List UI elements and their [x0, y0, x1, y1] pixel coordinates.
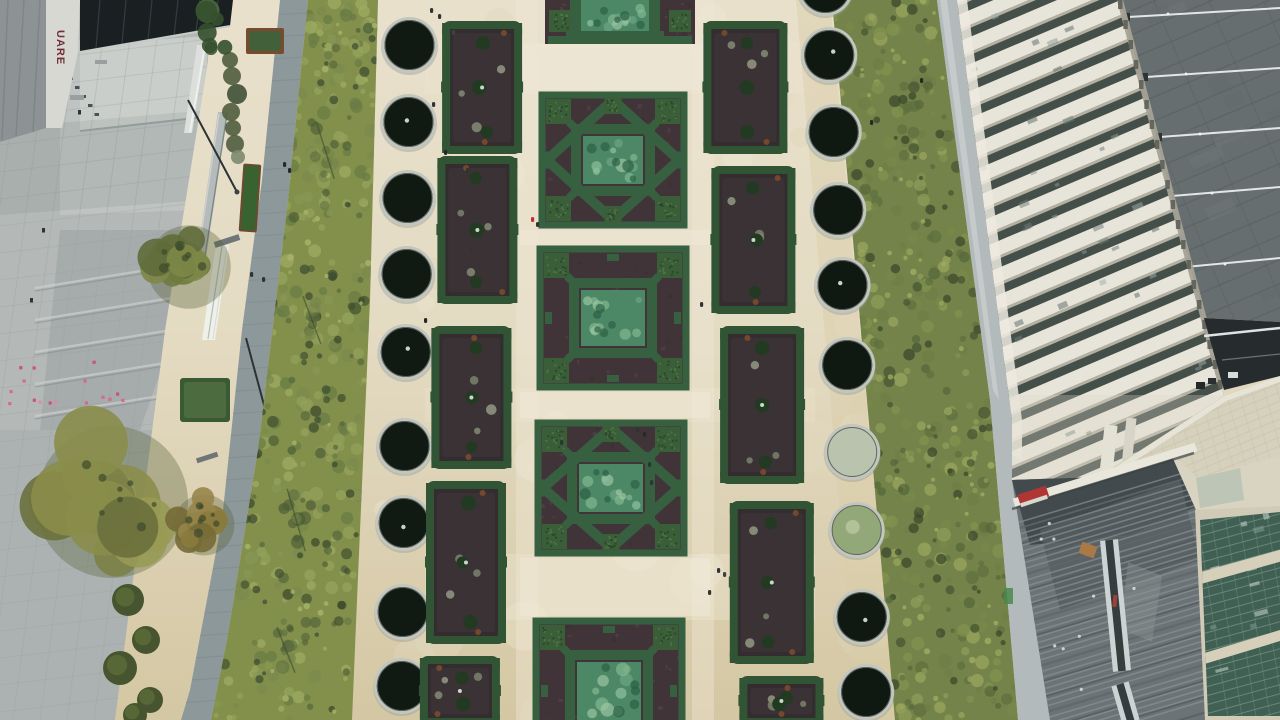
svg-text:UARE: UARE — [54, 30, 66, 65]
